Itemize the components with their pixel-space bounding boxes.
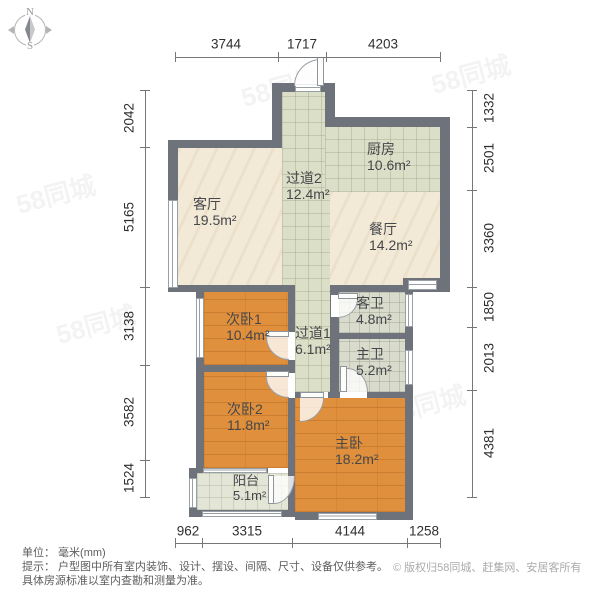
- room-area: 14.2m²: [369, 237, 413, 253]
- room-label-bedroom1: 次卧1 10.4m²: [226, 311, 270, 343]
- tick: [140, 497, 150, 498]
- wall: [328, 392, 340, 398]
- tick: [292, 538, 293, 548]
- dimension-line-top: [175, 57, 440, 58]
- room-name: 过道1: [295, 325, 331, 341]
- room-label-dining: 餐厅 14.2m²: [369, 221, 413, 253]
- dim-label: 2042: [122, 103, 137, 133]
- tick: [140, 90, 150, 91]
- window: [405, 350, 413, 385]
- master-bath-door-leaf: [340, 366, 347, 392]
- window: [405, 294, 413, 327]
- floor-plan-page: 58同城 58同城 58同城 58同城 58同城 N S: [0, 0, 600, 600]
- master-bedroom-door-leaf: [300, 392, 324, 398]
- tick: [202, 538, 203, 548]
- tick: [175, 538, 176, 548]
- room-area: 19.5m²: [193, 212, 237, 228]
- room-name: 客卫: [356, 295, 384, 311]
- tick: [140, 365, 150, 366]
- footer-note-line2: 具体房源标准以室内查勘和测量为准。: [22, 575, 209, 588]
- wall: [288, 292, 295, 332]
- room-area: 5.1m²: [233, 488, 266, 503]
- window: [189, 478, 197, 508]
- room-area: 11.8m²: [227, 417, 270, 433]
- wall: [330, 285, 405, 292]
- room-name: 过道2: [286, 170, 322, 186]
- room-name: 主卧: [335, 435, 363, 451]
- room-label-bedroom2: 次卧2 11.8m²: [227, 401, 270, 433]
- room-name: 次卧2: [227, 401, 263, 417]
- tick: [140, 147, 150, 148]
- room-area: 6.1m²: [295, 341, 331, 357]
- wall: [168, 285, 295, 292]
- dimension-line-right: [472, 90, 473, 497]
- room-name: 餐厅: [369, 221, 397, 237]
- dim-label: 1524: [122, 463, 137, 493]
- dim-label: 962: [177, 524, 200, 539]
- dim-label: 5165: [122, 202, 137, 232]
- room-name: 阳台: [233, 473, 259, 488]
- wall: [288, 360, 295, 373]
- wall: [325, 92, 335, 127]
- compass-west-arrow-icon: [8, 26, 14, 34]
- dim-label: 1332: [482, 93, 497, 123]
- dim-label: 2013: [482, 343, 497, 373]
- dim-label: 4203: [368, 37, 398, 52]
- wall: [367, 392, 405, 398]
- dim-label: 1717: [287, 37, 317, 52]
- room-label-corridor1: 过道1 6.1m²: [295, 325, 331, 357]
- dimension-line-left: [145, 90, 146, 497]
- watermark: 58同城: [12, 165, 100, 222]
- dim-label: 3138: [122, 311, 137, 341]
- tick: [467, 287, 477, 288]
- dim-label: 1258: [409, 524, 439, 539]
- guest-bath-door-leaf: [338, 293, 358, 299]
- dim-label: 4381: [482, 428, 497, 458]
- tick: [326, 52, 327, 62]
- wall: [440, 127, 450, 285]
- room-label-master: 主卧 18.2m²: [335, 435, 379, 467]
- tick: [467, 90, 477, 91]
- dim-label: 3744: [211, 37, 241, 52]
- dim-label: 3315: [232, 524, 262, 539]
- window: [168, 200, 178, 288]
- room-name: 主卫: [356, 346, 384, 362]
- room-area: 5.2m²: [356, 362, 392, 378]
- room-area: 4.8m²: [356, 311, 392, 327]
- dim-label: 2501: [482, 143, 497, 173]
- room-area: 10.4m²: [226, 327, 270, 343]
- tick: [440, 538, 441, 548]
- tick: [467, 327, 477, 328]
- dim-label: 3360: [482, 223, 497, 253]
- room-name: 次卧1: [226, 311, 262, 327]
- room-label-master-bath: 主卫 5.2m²: [356, 346, 392, 378]
- tick: [467, 127, 477, 128]
- tick: [467, 190, 477, 191]
- tick: [140, 460, 150, 461]
- room-area: 18.2m²: [335, 451, 379, 467]
- tick: [140, 287, 150, 288]
- room-area: 10.6m²: [367, 157, 411, 173]
- tick: [407, 538, 408, 548]
- room-label-living: 客厅 19.5m²: [193, 196, 237, 228]
- room-label-guest-bath: 客卫 4.8m²: [356, 295, 392, 327]
- room-label-balcony: 阳台 5.1m²: [233, 473, 266, 503]
- wall: [335, 117, 450, 127]
- room-label-kitchen: 厨房 10.6m²: [367, 141, 411, 173]
- tick: [175, 52, 176, 62]
- wall: [168, 140, 282, 148]
- wall: [272, 83, 282, 148]
- window: [196, 298, 204, 358]
- bedroom2-door-leaf: [266, 371, 289, 377]
- footer-unit: 单位： 毫米(mm): [22, 547, 106, 560]
- window: [202, 511, 282, 517]
- tick: [440, 52, 441, 62]
- wall: [288, 398, 295, 468]
- balcony-door-leaf: [268, 475, 274, 504]
- window: [318, 513, 377, 520]
- tick: [467, 390, 477, 391]
- dim-label: 1850: [482, 292, 497, 322]
- compass: N S: [10, 6, 54, 54]
- room-label-corridor2: 过道2 12.4m²: [286, 170, 330, 202]
- dim-label: 4144: [335, 524, 365, 539]
- room-name: 厨房: [367, 141, 395, 157]
- dim-label: 3582: [122, 397, 137, 427]
- dimension-line-bottom: [175, 543, 440, 544]
- tick: [278, 52, 279, 62]
- room-area: 12.4m²: [286, 186, 330, 202]
- window: [408, 280, 437, 290]
- footer-copyright: © 版权归58同城、赶集网、安居客所有: [393, 562, 581, 575]
- room-name: 客厅: [193, 196, 221, 212]
- wall: [330, 333, 405, 339]
- entry-door-leaf: [317, 57, 324, 86]
- tick: [467, 497, 477, 498]
- compass-east-arrow-icon: [46, 26, 52, 34]
- footer-note-line1: 提示： 户型图中所有室内装饰、设计、摆设、间隔、尺寸、设备仅供参考。: [22, 561, 388, 574]
